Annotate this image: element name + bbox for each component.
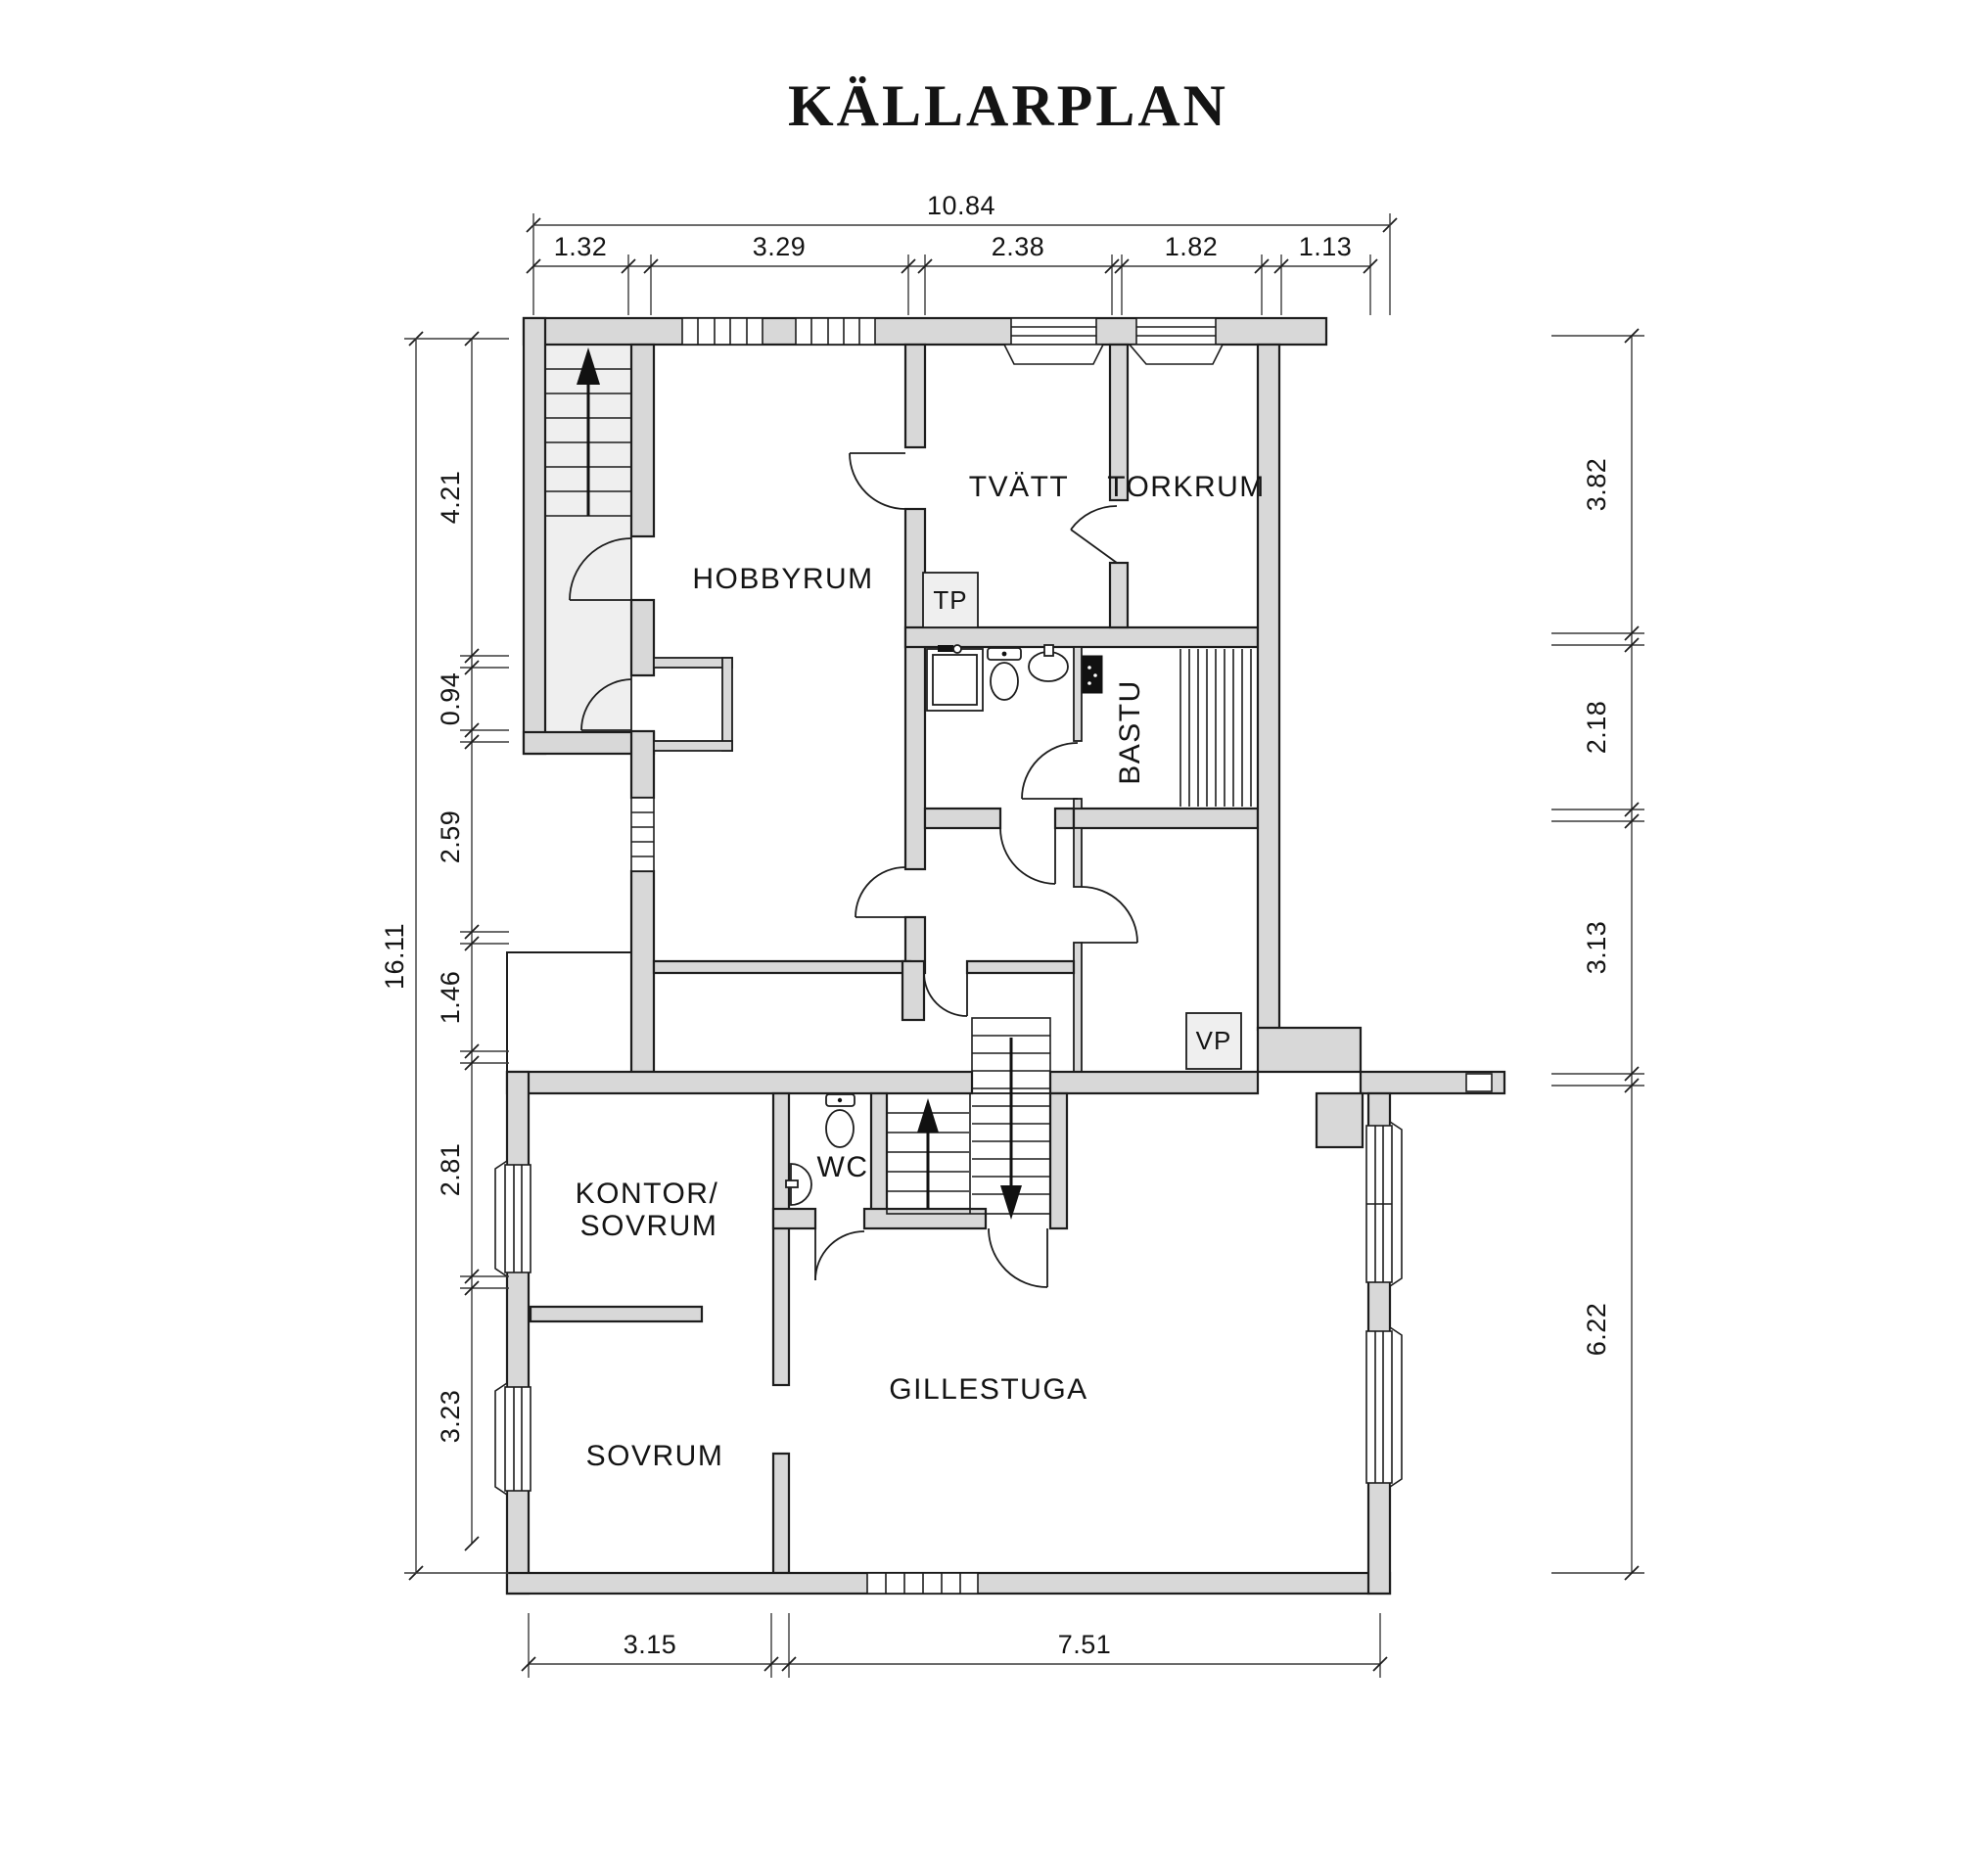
dim-left-seg: 2.59 <box>436 810 465 864</box>
window-icon <box>1366 1327 1402 1487</box>
storage-room <box>507 952 634 1072</box>
dim-left-seg: 0.94 <box>436 672 465 726</box>
door-arc-icon <box>1022 743 1078 799</box>
dim-right-seg: 6.22 <box>1582 1303 1611 1357</box>
sauna-bench-icon <box>1180 649 1251 807</box>
door-arc-icon <box>855 867 905 917</box>
dimension-top: 10.84 1.32 3.29 2.38 1.82 1.13 <box>527 191 1397 315</box>
sink-icon <box>1029 645 1068 681</box>
sauna-heater-icon <box>1083 656 1102 693</box>
label-tp-unit: TP <box>933 585 967 615</box>
floor-plan-drawing: KÄLLARPLAN <box>0 0 1988 1850</box>
toilet-icon <box>988 648 1021 700</box>
fireplace-block <box>1317 1093 1363 1147</box>
dim-right-seg: 3.82 <box>1582 458 1611 512</box>
window-icon <box>1004 318 1103 364</box>
room-label-hobbyrum: HOBBYRUM <box>692 563 873 595</box>
door-arc-icon <box>850 453 905 509</box>
dim-top-seg: 3.29 <box>753 232 807 261</box>
window-icon <box>867 1573 978 1594</box>
dim-left-total: 16.11 <box>380 923 409 990</box>
room-label-bastu: BASTU <box>1114 679 1146 785</box>
window-icon <box>1366 1122 1402 1286</box>
floor-plan-page: KÄLLARPLAN <box>0 0 1988 1850</box>
door-arc-icon <box>815 1228 864 1280</box>
window-icon <box>796 318 875 345</box>
door-arc-icon <box>1082 887 1137 943</box>
dim-bottom-seg: 7.51 <box>1058 1630 1112 1659</box>
window-icon <box>495 1383 531 1495</box>
room-label-kontor-sovrum: SOVRUM <box>580 1210 718 1242</box>
dim-left-seg: 2.81 <box>436 1143 465 1197</box>
room-label-sovrum: SOVRUM <box>586 1440 724 1472</box>
room-label-wc: WC <box>817 1151 869 1183</box>
door-arc-icon <box>1000 828 1055 884</box>
dim-top-seg: 1.32 <box>554 232 608 261</box>
dim-left-seg: 4.21 <box>436 471 465 525</box>
door-arc-icon <box>924 973 967 1016</box>
window-icon <box>1130 318 1223 364</box>
room-label-tvatt: TVÄTT <box>969 471 1070 503</box>
door-arc-icon <box>989 1228 1047 1287</box>
dim-top-seg: 2.38 <box>992 232 1045 261</box>
stairs-central <box>887 1018 1050 1220</box>
shower-icon <box>927 645 983 711</box>
dim-top-seg: 1.82 <box>1165 232 1219 261</box>
dim-right-seg: 3.13 <box>1582 921 1611 975</box>
dim-top-total: 10.84 <box>927 191 995 220</box>
dim-bottom-seg: 3.15 <box>624 1630 677 1659</box>
dimension-right: 3.82 2.18 3.13 6.22 <box>1551 329 1644 1580</box>
dim-left-seg: 3.23 <box>436 1390 465 1444</box>
label-vp-unit: VP <box>1196 1026 1232 1055</box>
plan-title: KÄLLARPLAN <box>788 73 1228 138</box>
fixtures <box>786 573 1251 1205</box>
dim-left-seg: 1.46 <box>436 971 465 1025</box>
window-icon <box>682 318 763 345</box>
toilet-icon <box>826 1094 855 1147</box>
window-icon <box>631 798 654 871</box>
window-icon <box>495 1161 531 1276</box>
door-arc-icon <box>1071 506 1117 563</box>
dim-right-seg: 2.18 <box>1582 701 1611 755</box>
room-label-kontor-sovrum: KONTOR/ <box>576 1178 719 1210</box>
dimension-bottom: 3.15 7.51 <box>522 1613 1387 1678</box>
room-label-torkrum: TORKRUM <box>1107 471 1266 503</box>
dimension-left: 16.11 4.21 0.94 2.59 1.46 2.81 3.23 <box>380 332 509 1580</box>
stairs-up-arrow-icon <box>917 1098 939 1133</box>
room-label-gillestuga: GILLESTUGA <box>889 1373 1087 1406</box>
dim-top-seg: 1.13 <box>1299 232 1353 261</box>
